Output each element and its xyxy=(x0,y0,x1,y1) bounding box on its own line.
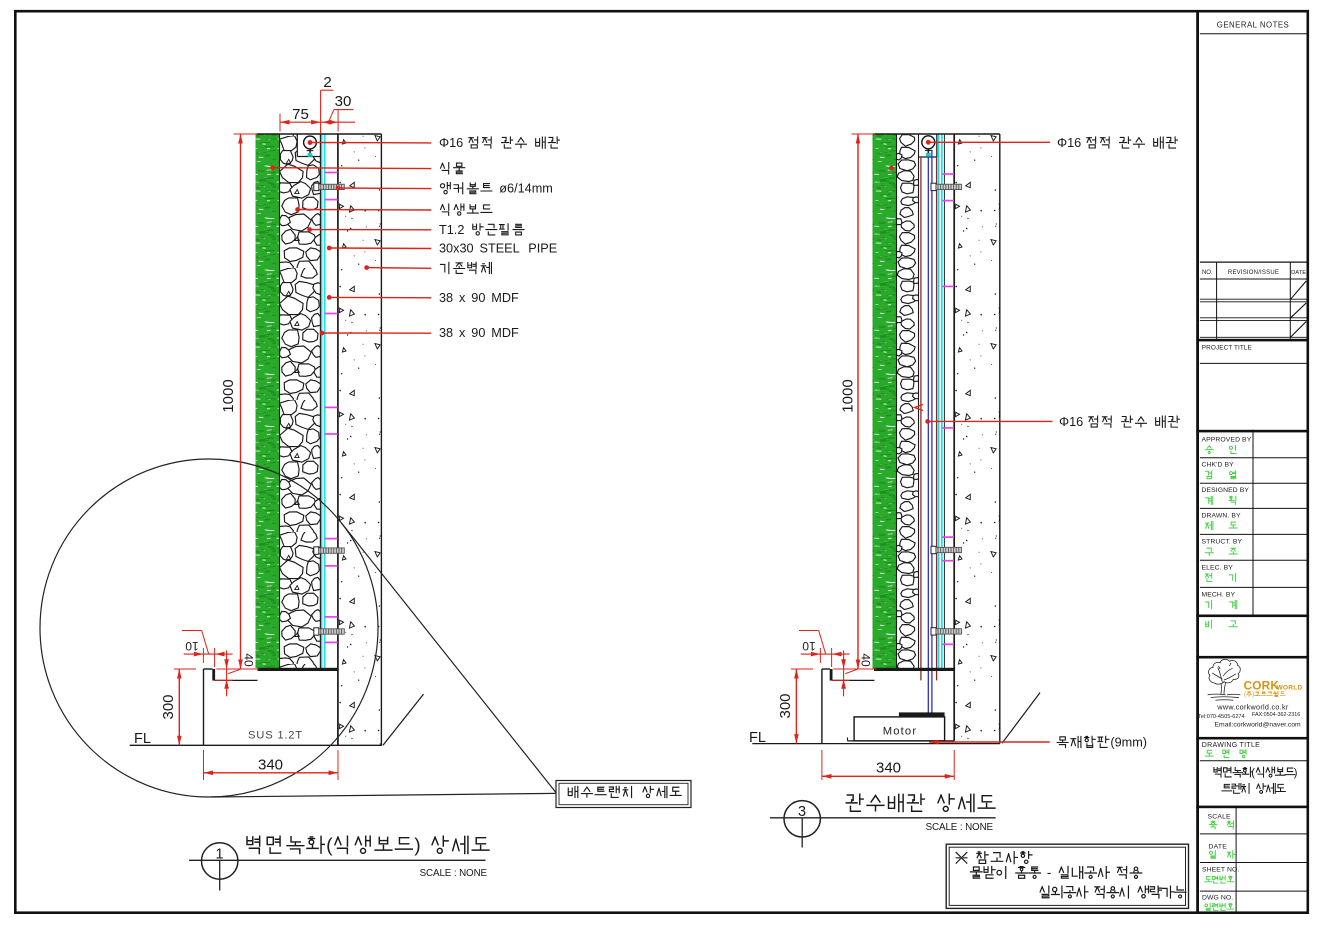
svg-text:340: 340 xyxy=(876,760,901,777)
svg-text:90: 90 xyxy=(471,326,485,340)
svg-text:ø6/14mm: ø6/14mm xyxy=(499,182,553,196)
svg-text:DRAWN. BY: DRAWN. BY xyxy=(1202,512,1242,519)
svg-text:DRAWING TITLE: DRAWING TITLE xyxy=(1202,742,1260,749)
svg-text:38: 38 xyxy=(439,326,453,340)
svg-text:Email:corkworld@naver.com: Email:corkworld@naver.com xyxy=(1215,722,1302,729)
svg-text:(9mm): (9mm) xyxy=(1110,735,1147,749)
svg-text:SCALE: SCALE xyxy=(1208,814,1232,821)
svg-text:): ) xyxy=(1252,692,1254,698)
svg-text:DWG NO.: DWG NO. xyxy=(1202,895,1233,902)
svg-text:2: 2 xyxy=(323,74,331,91)
svg-text:FL: FL xyxy=(134,731,151,747)
svg-text:300: 300 xyxy=(777,693,794,718)
svg-text:30x30: 30x30 xyxy=(439,242,474,256)
svg-text:CORK: CORK xyxy=(1244,679,1280,693)
svg-text:-: - xyxy=(1047,865,1051,880)
svg-text:x: x xyxy=(459,291,466,305)
svg-text:www.corkworld.co.kr: www.corkworld.co.kr xyxy=(1216,703,1289,712)
svg-text:SCALE : NONE: SCALE : NONE xyxy=(420,868,488,879)
svg-text:DATE: DATE xyxy=(1209,844,1228,851)
svg-text:CHK'D BY: CHK'D BY xyxy=(1202,462,1235,469)
svg-text:340: 340 xyxy=(258,757,283,774)
svg-text:Motor: Motor xyxy=(883,726,918,738)
svg-text:x: x xyxy=(459,326,466,340)
svg-text:Φ16: Φ16 xyxy=(1059,415,1083,429)
svg-text:1: 1 xyxy=(215,847,223,863)
svg-text:PROJECT TITLE: PROJECT TITLE xyxy=(1202,345,1252,352)
svg-text:APPROVED BY: APPROVED BY xyxy=(1202,436,1252,443)
svg-text:STEEL: STEEL xyxy=(480,242,520,256)
svg-text:1000: 1000 xyxy=(220,379,237,412)
svg-text:Tel:070-4505-6274: Tel:070-4505-6274 xyxy=(1198,714,1245,720)
svg-text:SHEET NO.: SHEET NO. xyxy=(1202,867,1239,874)
svg-text:REVISION/ISSUE: REVISION/ISSUE xyxy=(1228,270,1279,276)
svg-text:DATE: DATE xyxy=(1291,270,1306,276)
svg-text:10: 10 xyxy=(185,639,199,653)
svg-text:Φ16: Φ16 xyxy=(439,136,463,150)
svg-text:SCALE : NONE: SCALE : NONE xyxy=(926,822,994,833)
svg-text:MDF: MDF xyxy=(491,291,519,305)
svg-text:75: 75 xyxy=(292,106,309,123)
svg-text:3: 3 xyxy=(798,804,806,820)
svg-text:38: 38 xyxy=(439,291,453,305)
svg-text:MDF: MDF xyxy=(491,326,519,340)
svg-text:): ) xyxy=(1294,767,1298,779)
svg-text:40: 40 xyxy=(859,653,873,667)
svg-text:FAX:0504-362-2316: FAX:0504-362-2316 xyxy=(1252,712,1300,718)
svg-text:GENERAL NOTES: GENERAL NOTES xyxy=(1217,21,1290,30)
svg-text:40: 40 xyxy=(242,653,256,667)
svg-text:NO.: NO. xyxy=(1202,270,1213,276)
svg-text:30: 30 xyxy=(335,93,352,110)
svg-text:T1.2: T1.2 xyxy=(439,223,464,237)
svg-text:10: 10 xyxy=(802,639,816,653)
svg-text:(: ( xyxy=(1251,767,1255,779)
svg-text:SUS 1.2T: SUS 1.2T xyxy=(248,730,303,742)
svg-text:FL: FL xyxy=(749,730,766,746)
svg-text:Φ16: Φ16 xyxy=(1057,136,1081,150)
svg-text:PIPE: PIPE xyxy=(528,242,557,256)
svg-text:1000: 1000 xyxy=(840,379,857,412)
svg-text:300: 300 xyxy=(160,694,177,719)
svg-text:ELEC. BY: ELEC. BY xyxy=(1202,564,1234,571)
svg-text:(: ( xyxy=(1244,692,1246,698)
svg-text:WORLD: WORLD xyxy=(1277,685,1303,692)
svg-text:DESIGNED BY: DESIGNED BY xyxy=(1202,487,1250,494)
svg-text:(: ( xyxy=(326,835,333,857)
svg-text:): ) xyxy=(414,835,420,857)
svg-text:MECH. BY: MECH. BY xyxy=(1202,591,1236,598)
svg-text:90: 90 xyxy=(471,291,485,305)
svg-text:STRUCT. BY: STRUCT. BY xyxy=(1202,538,1243,545)
